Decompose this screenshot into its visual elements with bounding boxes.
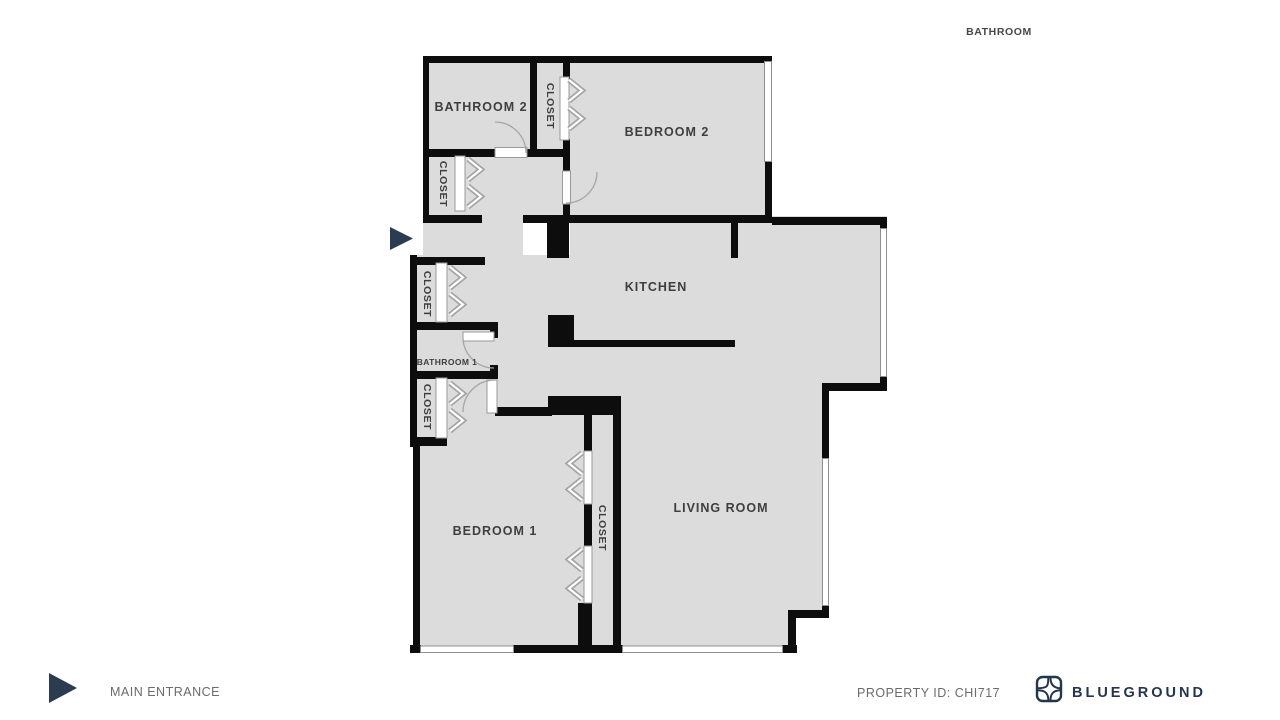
bifold-strip-closet-a (455, 156, 465, 211)
room-floors (410, 57, 887, 653)
label-closet-hall-bottom: CLOSET (421, 384, 433, 430)
property-id-label: PROPERTY ID: CHI717 (857, 686, 1000, 700)
door-leaf-bathroom2 (495, 148, 527, 158)
window-living-right (823, 459, 829, 606)
footer: MAIN ENTRANCE PROPERTY ID: CHI717 BLUEGR… (49, 673, 1206, 703)
floor-plan: BATHROOM 2 BEDROOM 2 KITCHEN LIVING ROOM… (0, 0, 1280, 720)
floor-living-room-notch (622, 610, 792, 650)
entrance-arrow-icon (390, 227, 413, 250)
window-bedroom2 (765, 62, 772, 162)
label-kitchen: KITCHEN (625, 280, 688, 294)
label-closet-bedroom2: CLOSET (544, 83, 556, 129)
label-closet-hall-top: CLOSET (437, 161, 449, 207)
window-living-bottom (623, 646, 783, 653)
brand-name: BLUEGROUND (1072, 685, 1206, 701)
floor-living-room (622, 386, 823, 614)
window-kitchen-right (881, 229, 887, 377)
floor-bedroom2 (563, 57, 772, 223)
door-gap-bedroom2 (563, 171, 571, 204)
blueground-logo-icon (1037, 677, 1061, 701)
label-living-room: LIVING ROOM (673, 501, 768, 515)
label-bedroom1: BEDROOM 1 (453, 524, 538, 538)
door-leaf-bathroom1 (463, 332, 494, 341)
bifold-strip-bedroom1-closet-2 (584, 546, 592, 603)
bifold-strip-closet-b (436, 263, 447, 322)
label-closet-bedroom1: CLOSET (596, 505, 608, 551)
label-stray-bathroom: BATHROOM (966, 26, 1032, 38)
main-entrance-label: MAIN ENTRANCE (110, 685, 220, 699)
label-closet-hall-mid: CLOSET (421, 271, 433, 317)
floor-plan-page: BATHROOM 2 BEDROOM 2 KITCHEN LIVING ROOM… (0, 0, 1280, 720)
bifold-strip-bedroom1-closet-1 (584, 451, 592, 504)
bifold-strip-bedroom2-closet (560, 77, 569, 140)
window-bedroom1-bottom (421, 646, 514, 653)
door-leaf-bedroom1 (487, 380, 497, 413)
bifold-strip-closet-c (436, 378, 447, 438)
label-bedroom2: BEDROOM 2 (625, 125, 710, 139)
label-bathroom2: BATHROOM 2 (434, 100, 527, 114)
main-entrance-legend-arrow-icon (49, 673, 77, 703)
floor-kitchen (570, 216, 887, 390)
label-bathroom1: BATHROOM 1 (417, 357, 478, 367)
